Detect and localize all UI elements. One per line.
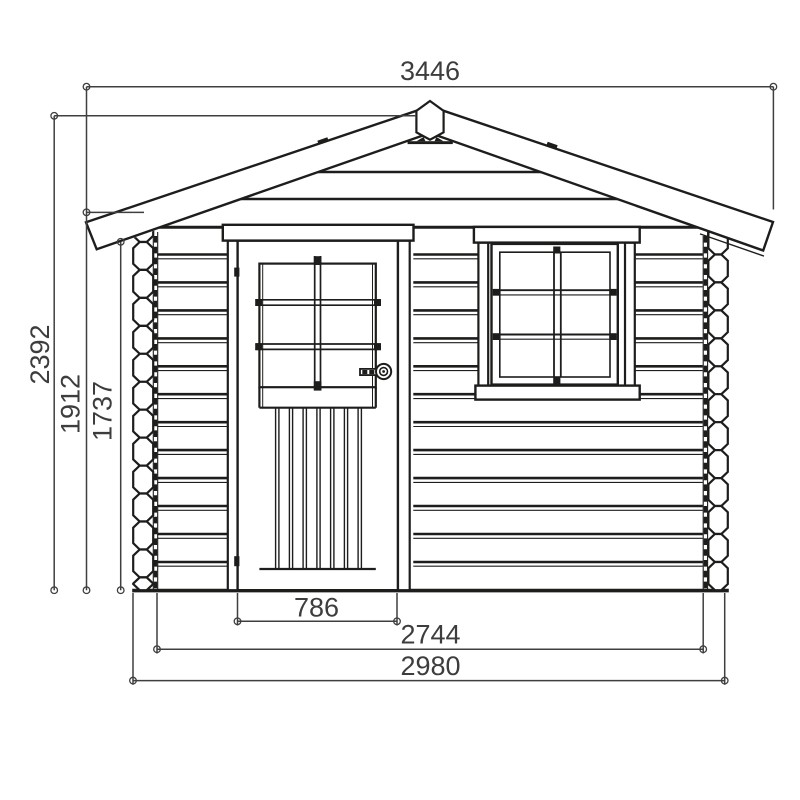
svg-text:786: 786 [294,593,339,623]
svg-text:1737: 1737 [88,381,118,441]
svg-text:2980: 2980 [400,651,460,681]
svg-text:2744: 2744 [400,620,460,650]
svg-text:2392: 2392 [25,324,55,384]
svg-text:3446: 3446 [400,56,460,86]
svg-text:1912: 1912 [56,374,86,434]
